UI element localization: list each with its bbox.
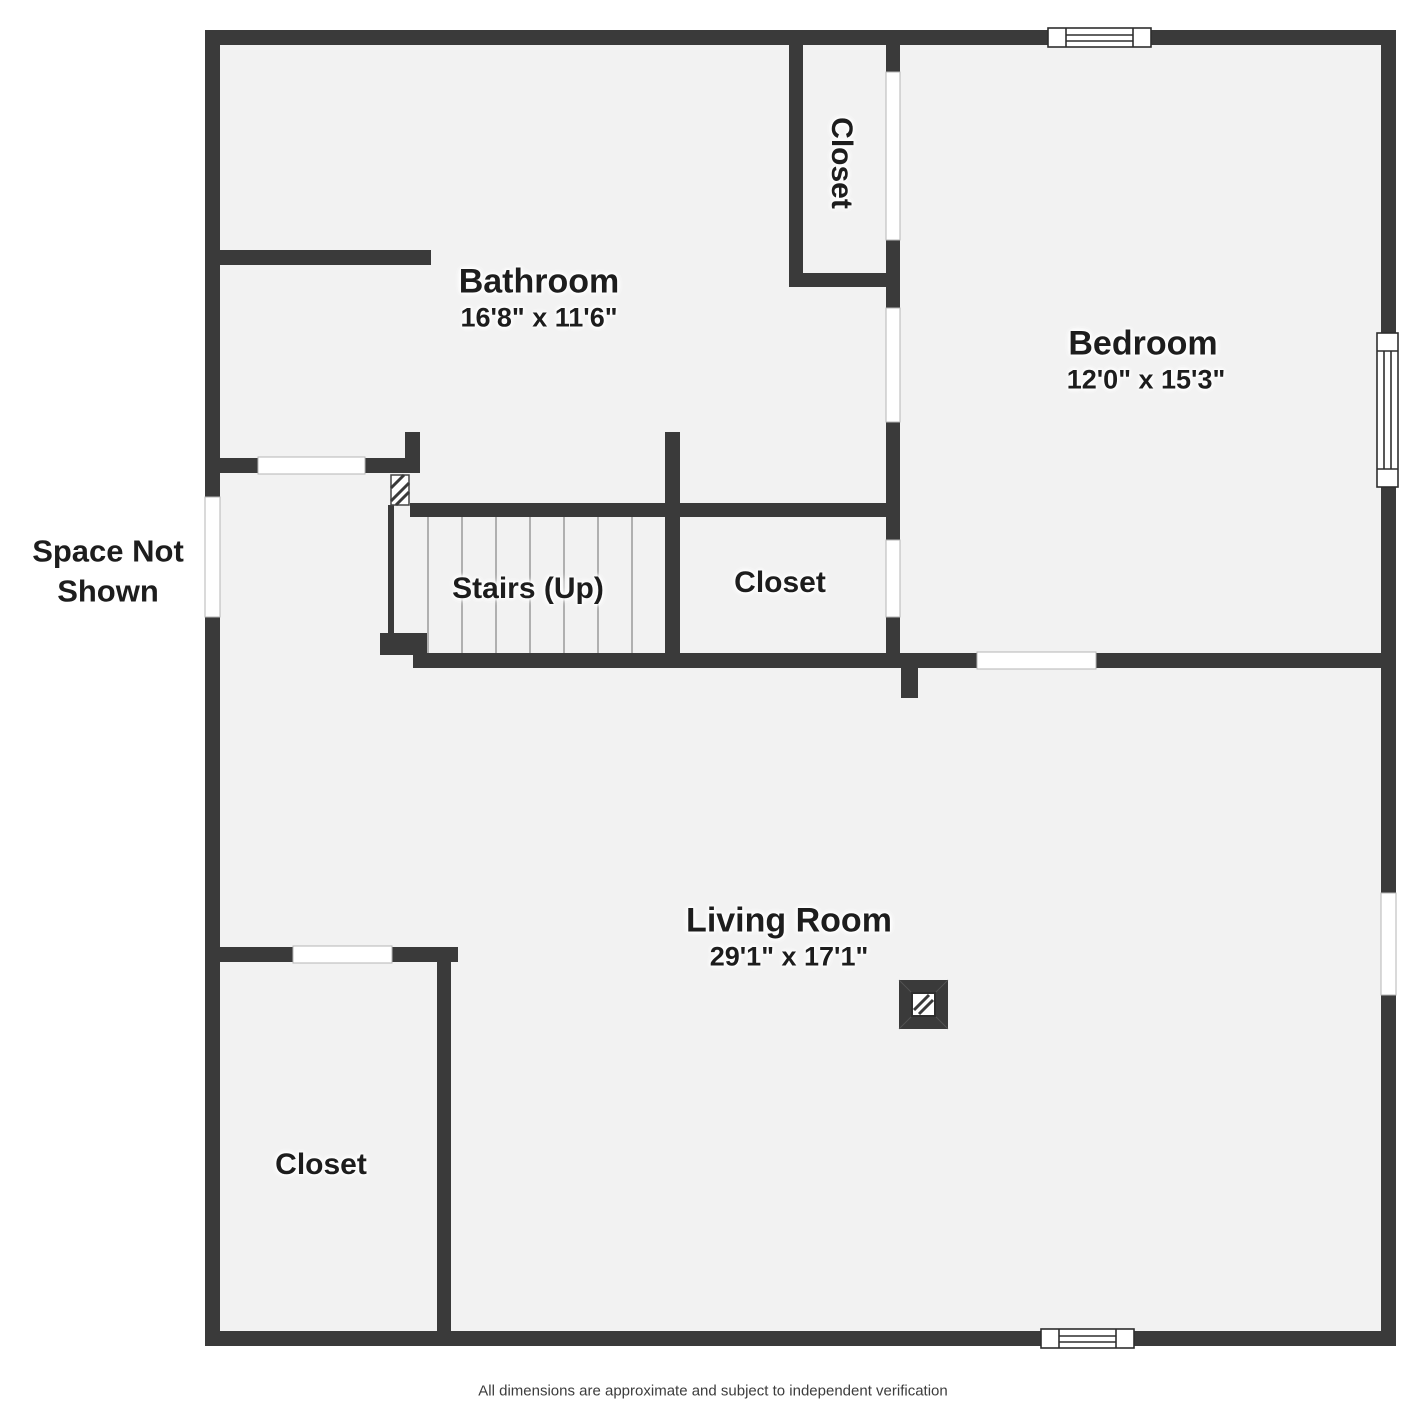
bedroom-label: Bedroom — [1068, 325, 1217, 364]
closet-bottom-label: Closet — [275, 1148, 367, 1182]
bedroom-dimensions: 12'0" x 15'3" — [1067, 365, 1226, 396]
space-not-shown-label: Space Not Shown — [8, 532, 208, 613]
window-symbol-bottom — [1041, 1329, 1134, 1348]
closet-mid-label: Closet — [734, 566, 826, 600]
bathroom-label: Bathroom — [459, 263, 620, 302]
window-symbol-right — [1377, 333, 1398, 487]
stairs-label: Stairs (Up) — [452, 572, 604, 606]
wall-hatch — [391, 475, 409, 505]
disclaimer-text: All dimensions are approximate and subje… — [478, 1383, 947, 1400]
window-symbol-top — [1048, 28, 1151, 47]
closet-top-label: Closet — [824, 117, 858, 209]
floorplan-drawing — [0, 0, 1427, 1408]
chimney-symbol — [899, 980, 948, 1029]
bathroom-dimensions: 16'8" x 11'6" — [460, 303, 617, 334]
floorplan-canvas: Bathroom 16'8" x 11'6" Bedroom 12'0" x 1… — [0, 0, 1427, 1408]
living-room-label: Living Room — [686, 902, 892, 941]
living-room-dimensions: 29'1" x 17'1" — [710, 942, 869, 973]
